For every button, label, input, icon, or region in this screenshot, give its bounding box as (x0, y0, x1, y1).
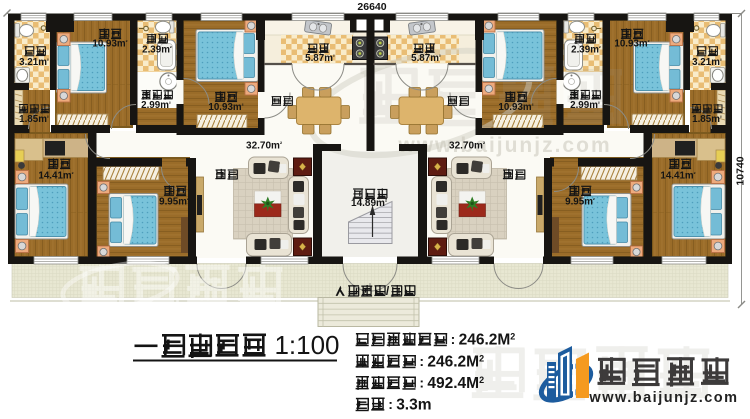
svg-text:10.93m²: 10.93m² (498, 102, 533, 113)
svg-text::: : (388, 396, 393, 412)
svg-text:5.87m²: 5.87m² (305, 53, 335, 64)
svg-text:2.99m²: 2.99m² (570, 100, 600, 111)
svg-text:32.70m²: 32.70m² (449, 141, 485, 152)
svg-text:www.baijunjz.com: www.baijunjz.com (588, 390, 738, 406)
svg-text:www.baijunjz.com: www.baijunjz.com (397, 134, 611, 157)
svg-text:2.39m²: 2.39m² (571, 45, 601, 56)
svg-text:492.4M2: 492.4M2 (427, 375, 484, 392)
svg-text:2.99m²: 2.99m² (141, 100, 171, 111)
svg-text:14.89m²: 14.89m² (351, 198, 387, 209)
svg-text:10.93m²: 10.93m² (208, 102, 243, 113)
svg-text:5.87m²: 5.87m² (411, 53, 441, 64)
svg-text:10.93m²: 10.93m² (614, 39, 649, 50)
svg-text:3.3m: 3.3m (396, 397, 431, 414)
svg-text:246.2M2: 246.2M2 (459, 332, 516, 349)
svg-text:3.21m²: 3.21m² (692, 57, 722, 68)
svg-text:26640: 26640 (357, 1, 386, 13)
svg-text:14.41m²: 14.41m² (660, 171, 695, 182)
svg-text:14.41m²: 14.41m² (38, 171, 73, 182)
svg-text:3.21m²: 3.21m² (19, 57, 49, 68)
svg-text:9.95m²: 9.95m² (565, 197, 595, 208)
svg-text:1.85m²: 1.85m² (19, 114, 49, 125)
svg-text:246.2M2: 246.2M2 (427, 354, 484, 371)
svg-text::: : (419, 375, 424, 391)
svg-text::: : (451, 331, 456, 347)
svg-text:1.85m²: 1.85m² (692, 114, 722, 125)
svg-text:1:100: 1:100 (274, 330, 339, 360)
svg-text:10.93m²: 10.93m² (92, 39, 127, 50)
svg-text:10740: 10740 (735, 156, 747, 185)
svg-text:9.95m²: 9.95m² (159, 197, 189, 208)
svg-text:32.70m²: 32.70m² (246, 141, 282, 152)
svg-text::: : (419, 353, 424, 369)
svg-text:2.39m²: 2.39m² (142, 45, 172, 56)
